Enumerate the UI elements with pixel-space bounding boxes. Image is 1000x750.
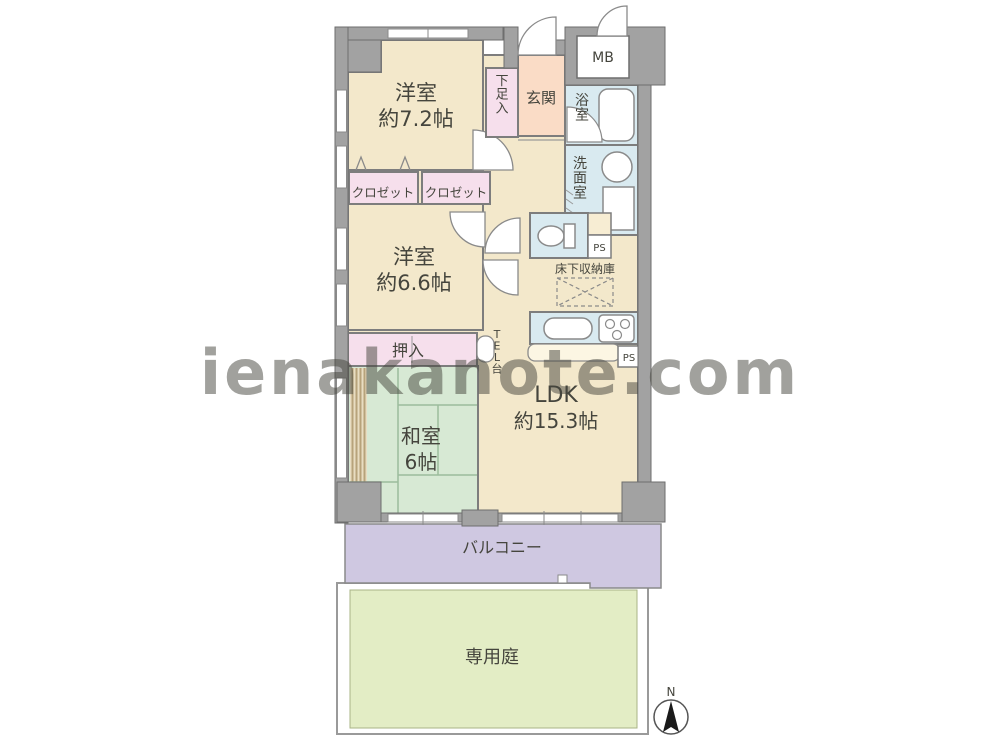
balcony-partition-block (462, 510, 498, 526)
label-japanese-size: 6帖 (405, 450, 438, 474)
label-oshiire: 押入 (392, 341, 424, 360)
label-ldk-size: 約15.3帖 (514, 409, 599, 433)
compass-north-label: N (667, 685, 676, 699)
label-western-2-name: 洋室 (393, 245, 435, 269)
label-japanese-name: 和室 (401, 424, 441, 448)
label-meter-box: MB (592, 50, 614, 66)
label-underfloor-storage: 床下収納庫 (555, 262, 615, 276)
label-western-1-size: 約7.2帖 (378, 107, 453, 131)
label-closet-right: クロゼット (425, 185, 488, 200)
meter-box-door-arc (597, 6, 627, 36)
toilet-side-shelf (588, 213, 611, 235)
label-ps-kitchen: PS (623, 353, 635, 364)
pillar-right (622, 482, 665, 522)
bathtub-icon (599, 89, 634, 141)
label-entrance: 玄関 (526, 89, 556, 107)
front-door-arc (518, 17, 556, 55)
floor-plan-svg: ienakanote.com 洋室 約7.2帖 クロゼット クロゼット 洋室 約… (0, 0, 1000, 750)
wall-notch-block (348, 40, 381, 72)
compass-icon: N (654, 685, 688, 734)
toilet-icon (538, 224, 575, 248)
floor-plan-page: ienakanote.com 洋室 約7.2帖 クロゼット クロゼット 洋室 約… (0, 0, 1000, 750)
sink-icon (602, 152, 632, 182)
label-washroom: 洗面室 (573, 156, 587, 201)
label-western-2-size: 約6.6帖 (376, 271, 451, 295)
label-ldk-name: LDK (534, 383, 578, 408)
label-balcony: バルコニー (462, 538, 542, 557)
label-bathroom: 浴室 (575, 93, 589, 124)
label-ps-toilet: PS (593, 243, 605, 254)
sliding-window-ldk (502, 514, 618, 522)
label-private-garden: 専用庭 (465, 647, 519, 668)
label-western-1-name: 洋室 (395, 81, 437, 105)
label-closet-left: クロゼット (352, 185, 415, 200)
label-shoe-cabinet: 下足入 (495, 74, 508, 116)
balcony-drain-hatch (558, 575, 567, 583)
pillar-left (337, 482, 381, 522)
